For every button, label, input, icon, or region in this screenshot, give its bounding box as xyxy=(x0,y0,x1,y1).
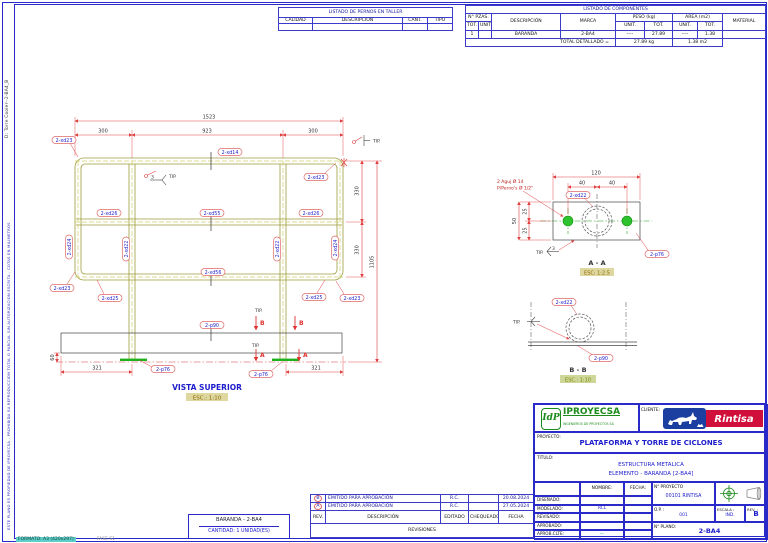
revision-letter: A xyxy=(314,503,322,510)
col-desc: DESCRIPCIÓN xyxy=(492,14,561,30)
revisions-footer: REVISIONES xyxy=(311,524,534,538)
op-value: 001 xyxy=(652,513,715,518)
total-weight: 27.89 kg xyxy=(616,38,673,46)
rintisa-name: Rintisa xyxy=(714,414,753,425)
revisions-header-row: REV. DESCRIPCIÓN EDITADO CHEQUEADO FECHA xyxy=(311,511,534,524)
col-pzas: N° PZAS. xyxy=(466,14,492,22)
bolts-table-title: LISTADO DE PERNOS EN TALLER xyxy=(279,8,453,18)
iproyecsa-logo-icon: IdP xyxy=(541,408,561,430)
col-marca: MARCA xyxy=(561,14,616,30)
cell xyxy=(469,503,499,511)
cone-projection-icon xyxy=(747,488,761,500)
titulo-cell: TITULO: ESTRUCTURA METALICA ELEMENTO - B… xyxy=(534,452,768,483)
col-unit: UNIT. xyxy=(479,22,492,30)
iproyecsa-name: IPROYECSA xyxy=(563,410,620,416)
projection-symbol-cell xyxy=(714,481,768,506)
row-aprobclte: APROB.CLTE: xyxy=(534,529,581,540)
cell: R.C. xyxy=(441,503,469,511)
col-material: MATERIAL xyxy=(723,14,766,30)
dog-icon xyxy=(668,412,697,425)
escala-value: IND. xyxy=(715,513,745,518)
cell: R.C. xyxy=(441,495,469,503)
col-area-tot: TOT. xyxy=(698,22,723,30)
logo-cell: IdP IPROYECSA INGENIEROS DE PROYECTOS SA xyxy=(534,404,640,433)
cell: B xyxy=(311,495,326,503)
nplano-value: 2-BA4 xyxy=(652,529,767,534)
title-block: IdP IPROYECSA INGENIEROS DE PROYECTOS SA… xyxy=(533,403,765,537)
revisions-footer-row: REVISIONES xyxy=(311,524,534,538)
nproyecto-cell: N° PROYECTO 00101 RINTISA xyxy=(651,481,716,506)
part-box-name: BARANDA - 2-BA4 xyxy=(189,518,289,523)
titulo-label: TITULO: xyxy=(537,455,553,460)
col-area-unit: UNIT. xyxy=(673,22,698,30)
proyecto-label: PROYECTO: xyxy=(537,434,561,439)
margin-disclaimer: ESTE PLANO ES PROPIEDAD DE IPROYECSA - P… xyxy=(6,145,11,530)
phase-label: FASE S1 xyxy=(97,537,115,543)
components-title-row: LISTADO DE COMPONENTES xyxy=(466,6,766,14)
titulo-line2: ELEMENTO - BARANDA [2-BA4] xyxy=(535,472,767,477)
cell: 20.08.2024 xyxy=(499,495,534,503)
cell: 27.05.2024 xyxy=(499,503,534,511)
nproyecto-value: 00101 RINTISA xyxy=(652,494,715,499)
cell xyxy=(469,495,499,503)
target-icon xyxy=(720,485,738,502)
cliente-cell: CLIENTE: Rintisa xyxy=(638,404,768,433)
col-area: AREA (m2) xyxy=(673,14,723,22)
proyecto-value: PLATAFORMA Y TORRE DE CICLONES xyxy=(535,441,767,446)
drawing-sheet: D: Torre Cooler--2-BA4_B ESTE PLANO ES P… xyxy=(0,0,768,543)
proyecto-cell: PROYECTO: PLATAFORMA Y TORRE DE CICLONES xyxy=(534,431,768,454)
total-area: 1.38 m2 xyxy=(673,38,723,46)
cell: A xyxy=(311,503,326,511)
components-table-title: LISTADO DE COMPONENTES xyxy=(466,6,766,14)
col-peso: PESO (kg) xyxy=(616,14,673,22)
rev-value: B xyxy=(745,512,767,517)
file-path-label: D: Torre Cooler--2-BA4_B xyxy=(5,8,10,138)
total-label: TOTAL DETALLADO = xyxy=(466,38,616,46)
format-value: FORMATO: A3 (420x297) xyxy=(16,537,76,542)
col-peso-unit: UNIT. xyxy=(616,22,645,30)
revision-row: BEMITIDO PARA APROBACIÓNR.C.20.08.2024 xyxy=(311,495,534,503)
titulo-line1: ESTRUCTURA METALICA xyxy=(535,463,767,468)
iproyecsa-sub: INGENIEROS DE PROYECTOS SA xyxy=(563,422,614,427)
assembly-marca: 2-BA4 xyxy=(561,30,616,38)
bolts-title-row: LISTADO DE PERNOS EN TALLER xyxy=(279,8,453,18)
cell: EMITIDO PARA APROBACIÓN xyxy=(326,503,441,511)
assembly-row: 1 BARANDA 2-BA4 ---- 27.89 ---- 1.38 xyxy=(466,30,766,38)
assembly-desc: BARANDA xyxy=(492,30,561,38)
revision-row: AEMITIDO PARA APROBACIÓNR.C.27.05.2024 xyxy=(311,503,534,511)
cell: EMITIDO PARA APROBACIÓN xyxy=(326,495,441,503)
aprobclte-value: — xyxy=(579,529,625,540)
components-table: LISTADO DE COMPONENTES N° PZAS. DESCRIPC… xyxy=(465,5,766,47)
assembly-tot: 1 xyxy=(466,30,479,38)
bolts-table: LISTADO DE PERNOS EN TALLER CALIDAD DESC… xyxy=(278,7,453,31)
part-box: BARANDA - 2-BA4 CANTIDAD: 1 UNIDAD(ES) xyxy=(188,514,290,539)
cliente-label: CLIENTE: xyxy=(641,407,660,412)
format-label: FORMATO: A3 (420x297) xyxy=(16,537,76,543)
part-box-qty: CANTIDAD: 1 UNIDAD(ES) xyxy=(189,529,289,534)
cat-icon xyxy=(697,424,704,427)
revision-letter: B xyxy=(314,495,322,502)
bolts-empty-row xyxy=(279,24,453,31)
components-header-row-1: N° PZAS. DESCRIPCIÓN MARCA PESO (kg) ARE… xyxy=(466,14,766,22)
signature-grid: NOMBRE: FECHA: DISEÑADO: MODELADO: REVIS… xyxy=(534,481,766,538)
nplano-cell: N° PLANO: 2-BA4 xyxy=(651,521,768,540)
total-row: TOTAL DETALLADO = 27.89 kg 1.38 m2 xyxy=(466,38,766,46)
col-tot: TOT. xyxy=(466,22,479,30)
col-peso-tot: TOT. xyxy=(645,22,673,30)
revisions-table: BEMITIDO PARA APROBACIÓNR.C.20.08.2024AE… xyxy=(310,494,534,538)
